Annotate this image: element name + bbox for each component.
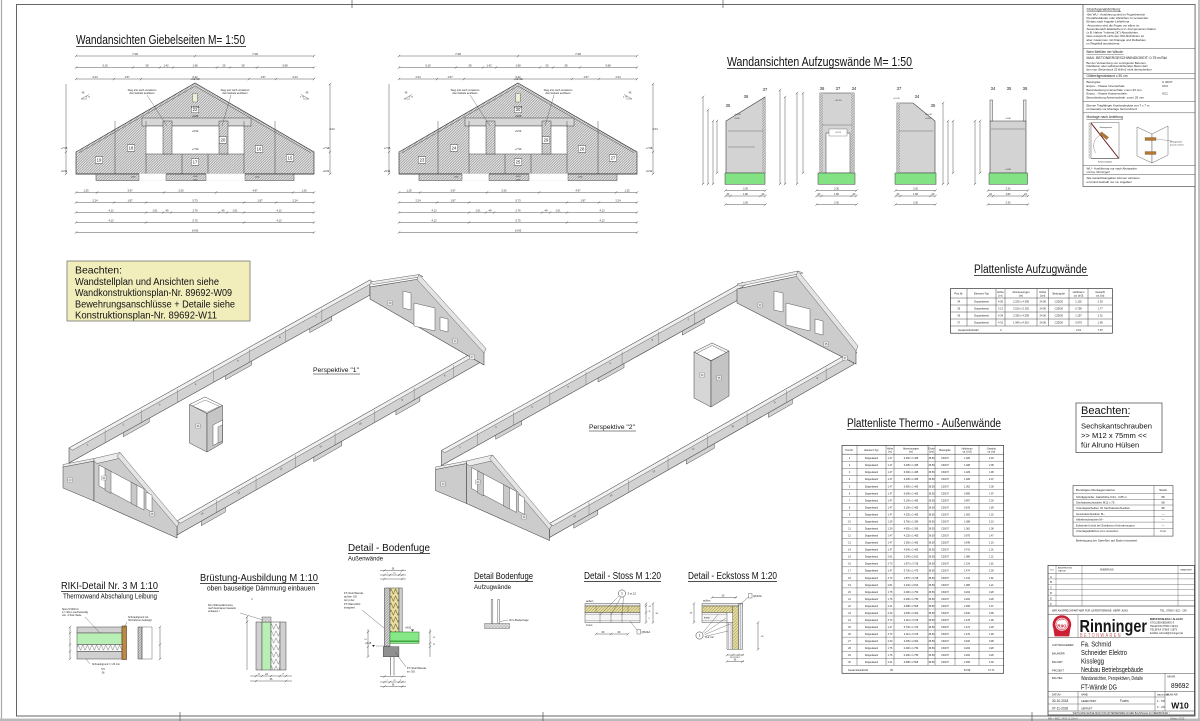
svg-text:+9.52: +9.52 — [515, 129, 522, 133]
svg-text:4.12: 4.12 — [599, 219, 605, 223]
svg-text:Wandstellplan und Ansichten s: Wandstellplan und Ansichten siehe — [75, 277, 219, 288]
svg-text:RIKI-Detail Nr. 3 M 1:10: RIKI-Detail Nr. 3 M 1:10 — [61, 581, 159, 592]
svg-text:33.59: 33.59 — [964, 668, 971, 672]
svg-text:36.50: 36.50 — [929, 577, 936, 580]
svg-text:1.82: 1.82 — [743, 193, 748, 196]
svg-text:1.87: 1.87 — [450, 199, 456, 203]
svg-text:Doppelwand: Doppelwand — [865, 598, 879, 601]
svg-text:+8.86: +8.86 — [1005, 118, 1011, 120]
svg-text:Unterlagsplättchen zum versetz: Unterlagsplättchen zum versetzen — [1076, 529, 1119, 533]
svg-text:C30/37: C30/37 — [941, 535, 949, 538]
svg-text:Doppelwand: Doppelwand — [865, 577, 879, 580]
svg-text:2.30: 2.30 — [743, 202, 748, 205]
svg-text:C30/37: C30/37 — [941, 471, 949, 474]
svg-text:1.314: 1.314 — [964, 563, 971, 566]
svg-text:Doppelwand: Doppelwand — [865, 499, 879, 502]
svg-text:Gitterträgerabstand ≤ 50 cm: Gitterträgerabstand ≤ 50 cm — [1087, 74, 1128, 78]
svg-text:Fundamentplatte: Fundamentplatte — [1098, 161, 1112, 164]
svg-text:1.47: 1.47 — [888, 506, 893, 509]
svg-text:1.75: 1.75 — [888, 647, 893, 650]
svg-text:6.105 x 1.465: 6.105 x 1.465 — [904, 499, 919, 502]
svg-text:AUFTRAGGEBER: AUFTRAGGEBER — [1052, 643, 1074, 647]
svg-text:Doppelwand: Doppelwand — [865, 485, 879, 488]
svg-text:7.00: 7.00 — [455, 52, 461, 56]
svg-text:1.87: 1.87 — [257, 199, 263, 203]
svg-text:3.350 x 1.465: 3.350 x 1.465 — [904, 542, 919, 545]
svg-text:6.32: 6.32 — [515, 75, 521, 79]
svg-text:C30/37: C30/37 — [941, 506, 949, 509]
svg-text:1.479: 1.479 — [964, 633, 971, 636]
svg-text:0.979: 0.979 — [1075, 321, 1082, 325]
svg-text:Doppelwand: Doppelwand — [865, 528, 879, 531]
svg-text:[m]: [m] — [999, 293, 1003, 297]
svg-text:1.47: 1.47 — [888, 478, 893, 481]
svg-text:24.00: 24.00 — [1040, 314, 1047, 318]
svg-text:2.03: 2.03 — [989, 499, 994, 502]
svg-text:1.47: 1.47 — [888, 549, 893, 552]
svg-text:FT-Wände DG: FT-Wände DG — [1081, 683, 1117, 692]
svg-text:C30/37: C30/37 — [941, 626, 949, 629]
svg-text:C30/37: C30/37 — [941, 563, 949, 566]
svg-text:Doppelwand: Doppelwand — [865, 542, 879, 545]
svg-text:HERR JUNG: HERR JUNG — [1113, 609, 1128, 613]
svg-text:Doppelwand: Doppelwand — [865, 612, 879, 615]
svg-text:2.08: 2.08 — [989, 464, 994, 467]
svg-text:2.230 u 4.338: 2.230 u 4.338 — [1013, 300, 1029, 304]
svg-text:+9.89: +9.89 — [192, 114, 199, 118]
svg-text:BETONWAREN: BETONWAREN — [1080, 633, 1122, 639]
svg-text:+8.81: +8.81 — [254, 177, 260, 179]
svg-text:1.47: 1.47 — [888, 513, 893, 516]
svg-text:GEZEICHNET: GEZEICHNET — [1081, 700, 1097, 703]
svg-text:Doppelwand: Doppelwand — [865, 563, 879, 566]
svg-text:des Giebels ausfösen: des Giebels ausfösen — [453, 91, 479, 95]
svg-text:2.265: 2.265 — [964, 661, 971, 664]
svg-text:6.300 x 1.465: 6.300 x 1.465 — [904, 457, 919, 460]
svg-text:Plattenliste Aufzugwände: Plattenliste Aufzugwände — [974, 264, 1087, 276]
svg-text:6.04: 6.04 — [652, 127, 658, 131]
svg-text:1.47: 1.47 — [888, 471, 893, 474]
svg-text:1.99: 1.99 — [989, 619, 994, 622]
svg-text:4.34: 4.34 — [998, 314, 1004, 318]
svg-text:4.5: 4.5 — [649, 606, 652, 608]
svg-text:+7.98: +7.98 — [646, 146, 653, 150]
svg-text:W10: W10 — [1171, 701, 1189, 711]
svg-text:C30/37: C30/37 — [941, 492, 949, 495]
svg-text:2.30: 2.30 — [834, 188, 839, 191]
svg-text:Doppelwand: Doppelwand — [865, 640, 879, 643]
svg-text:1.89: 1.89 — [989, 506, 994, 509]
svg-text:Thermowand Abschalung Leibung: Thermowand Abschalung Leibung — [63, 594, 157, 601]
svg-text:5.75: 5.75 — [192, 219, 198, 223]
svg-text:2.30: 2.30 — [888, 640, 893, 643]
svg-text:D: D — [1050, 591, 1052, 595]
svg-text:C30/37: C30/37 — [941, 619, 949, 622]
svg-text:0.490 x 1.750: 0.490 x 1.750 — [904, 654, 919, 657]
svg-text:37: 37 — [763, 87, 768, 92]
svg-text:innen: innen — [704, 617, 711, 620]
svg-text:17: 17 — [193, 160, 198, 165]
svg-text:4.97: 4.97 — [252, 189, 258, 193]
svg-text:Montagewinkel: Montagewinkel — [1170, 141, 1183, 144]
svg-text:1.47: 1.47 — [888, 485, 893, 488]
svg-text:34: 34 — [852, 86, 857, 91]
svg-text:2.110 x 3.728: 2.110 x 3.728 — [904, 619, 919, 622]
svg-text:STOLZENSEEWEG 9: STOLZENSEEWEG 9 — [1150, 620, 1174, 624]
svg-text:0.490 x 1.750: 0.490 x 1.750 — [904, 591, 919, 594]
svg-text:+6.91: +6.91 — [384, 169, 391, 173]
svg-text:6.300 x 1.465: 6.300 x 1.465 — [904, 471, 919, 474]
svg-text:2.31: 2.31 — [1098, 314, 1104, 318]
svg-text:C30/37: C30/37 — [941, 605, 949, 608]
svg-text:Stück: Stück — [1159, 488, 1167, 492]
svg-text:1.47: 1.47 — [989, 535, 994, 538]
svg-text:36.50: 36.50 — [929, 478, 936, 481]
svg-text:NAME: NAME — [1081, 694, 1088, 697]
svg-text:37: 37 — [897, 86, 902, 91]
svg-text:18: 18 — [129, 146, 134, 151]
svg-text:36.50: 36.50 — [929, 633, 936, 636]
svg-text:B: B — [1050, 580, 1052, 584]
svg-text:Perspektive "2": Perspektive "2" — [589, 425, 635, 431]
svg-text:Eckwinkel (nicht bei Sichtbeto: Eckwinkel (nicht bei Sichtbeton Anforder… — [1076, 523, 1135, 527]
svg-text:DATUM: DATUM — [1052, 694, 1060, 697]
svg-text:C30/37: C30/37 — [941, 654, 949, 657]
svg-text:6.088 x 2.505: 6.088 x 2.505 — [904, 605, 919, 608]
svg-text:4.97: 4.97 — [575, 189, 581, 193]
svg-text:1.98: 1.98 — [989, 471, 994, 474]
svg-text:1.42: 1.42 — [163, 64, 169, 68]
svg-text:1.062: 1.062 — [964, 485, 971, 488]
svg-text:Gewindeschrauben M--: Gewindeschrauben M-- — [1076, 512, 1105, 516]
svg-text:4 ø 12: 4 ø 12 — [705, 635, 714, 639]
svg-text:36.50: 36.50 — [929, 457, 936, 460]
svg-text:2.37: 2.37 — [989, 605, 994, 608]
svg-text:7.00: 7.00 — [132, 52, 138, 56]
svg-text:+11.20: +11.20 — [835, 100, 842, 102]
svg-text:Betongüte: Betongüte — [939, 449, 951, 452]
svg-text:24.00: 24.00 — [1040, 307, 1047, 311]
svg-text:Perspektive "1": Perspektive "1" — [313, 368, 359, 374]
svg-text:+6.91: +6.91 — [646, 169, 653, 173]
svg-text:36.50: 36.50 — [929, 647, 936, 650]
svg-text:4.30: 4.30 — [998, 300, 1004, 304]
svg-text:1.87: 1.87 — [580, 199, 586, 203]
svg-text:Montagestütze: Montagestütze — [1100, 126, 1112, 129]
svg-text:Plattenliste Thermo - Außenw: Plattenliste Thermo - Außenwände — [847, 418, 1001, 430]
svg-text:integriert: integriert — [344, 605, 355, 609]
svg-text:GEPRÜFT: GEPRÜFT — [1081, 708, 1093, 711]
svg-text:+8.81: +8.81 — [515, 179, 521, 181]
svg-text:Doppelwand: Doppelwand — [865, 457, 879, 460]
svg-text:35: 35 — [726, 103, 731, 108]
svg-text:Brüstung-Ausbildung M 1:10: Brüstung-Ausbildung M 1:10 — [200, 573, 319, 584]
svg-text:1.029: 1.029 — [964, 471, 971, 474]
svg-text:BAUORT: BAUORT — [1052, 660, 1063, 664]
svg-text:5.19: 5.19 — [425, 64, 431, 68]
svg-text:1.39: 1.39 — [888, 520, 893, 523]
svg-text:Beim Befüllen der Wände:: Beim Befüllen der Wände: — [1087, 50, 1124, 54]
svg-text:2.21: 2.21 — [888, 661, 893, 664]
svg-text:2.07: 2.07 — [989, 478, 994, 481]
svg-text:RIKI: RIKI — [1057, 623, 1067, 629]
svg-text:1.47: 1.47 — [888, 492, 893, 495]
svg-text:Konstruktionsplan-Nr. 89692-W1: Konstruktionsplan-Nr. 89692-W11 — [75, 311, 217, 322]
svg-text:1.081: 1.081 — [964, 528, 971, 531]
svg-text:68: 68 — [1161, 495, 1165, 499]
svg-text:C30/37: C30/37 — [941, 591, 949, 594]
svg-text:1.940 u 4.310: 1.940 u 4.310 — [1013, 321, 1029, 325]
svg-text:24.00: 24.00 — [1040, 321, 1047, 325]
svg-text:Doppelwand: Doppelwand — [865, 570, 879, 573]
svg-text:C30/37: C30/37 — [941, 570, 949, 573]
svg-text:1.875 x 3.728: 1.875 x 3.728 — [904, 563, 919, 566]
svg-text:Unterlagsscheiben für Sechskan: Unterlagsscheiben für Sechskantschrauben — [1076, 506, 1131, 510]
svg-text:2.30: 2.30 — [888, 612, 893, 615]
svg-text:1: 1 — [699, 634, 701, 638]
svg-text:36.50: 36.50 — [929, 584, 936, 587]
svg-text:24.00: 24.00 — [1040, 300, 1047, 304]
svg-text:36.50: 36.50 — [929, 612, 936, 615]
svg-text:Detail Bodenfuge: Detail Bodenfuge — [474, 571, 533, 582]
svg-text:Betondeckung Aussenschale:: Betondeckung Aussenschale: cnom 25 mm — [1087, 95, 1145, 99]
svg-text:0.548: 0.548 — [964, 542, 971, 545]
svg-text:+7.98: +7.98 — [323, 146, 330, 150]
svg-text:0.910: 0.910 — [964, 612, 971, 615]
svg-text:1.01: 1.01 — [152, 209, 158, 213]
svg-text:+8.81: +8.81 — [192, 179, 198, 181]
svg-text:4.01: 4.01 — [1076, 328, 1082, 332]
svg-text:C25/30: C25/30 — [1055, 307, 1064, 311]
svg-text:4.31: 4.31 — [998, 321, 1004, 325]
svg-text:36.50: 36.50 — [929, 499, 936, 502]
svg-text:24: 24 — [452, 146, 457, 151]
svg-text:89692: 89692 — [1171, 683, 1189, 690]
svg-text:7.97: 7.97 — [1098, 328, 1104, 332]
svg-text:Betongüte: Betongüte — [1053, 292, 1066, 296]
svg-text:9: 9 — [649, 618, 650, 620]
svg-text:für Alruno Hülsen: für Alruno Hülsen — [1081, 441, 1139, 450]
svg-text:ÄNDERUNGS: ÄNDERUNGS — [1058, 567, 1073, 570]
svg-text:+9.89: +9.89 — [515, 114, 522, 118]
svg-text:C30/37: C30/37 — [941, 584, 949, 587]
svg-text:0.98: 0.98 — [989, 612, 994, 615]
svg-text:1.75: 1.75 — [888, 598, 893, 601]
svg-text:Holzrahmen befestigt: Holzrahmen befestigt — [128, 619, 152, 622]
svg-text:A: A — [1050, 575, 1052, 579]
svg-text:2.08: 2.08 — [989, 485, 994, 488]
svg-text:des Giebels ausfösen: des Giebels ausfösen — [130, 91, 156, 95]
svg-text:0.202: 0.202 — [964, 598, 971, 601]
svg-text:TELEFAX 07563 / 1873: TELEFAX 07563 / 1873 — [1150, 628, 1177, 632]
svg-text:6.32: 6.32 — [192, 75, 198, 79]
svg-text:36.50: 36.50 — [929, 542, 936, 545]
svg-text:Wandansichten, Perspektiven, D: Wandansichten, Perspektiven, Detaile — [1081, 676, 1143, 682]
svg-text:2.30: 2.30 — [743, 188, 748, 191]
svg-text:1.47: 1.47 — [888, 542, 893, 545]
svg-text:+8.84: +8.84 — [515, 176, 521, 178]
svg-text:3.73: 3.73 — [888, 563, 893, 566]
svg-text:Montage nach Anleitung: Montage nach Anleitung — [1087, 115, 1123, 119]
svg-text:1.086: 1.086 — [964, 584, 971, 587]
svg-text:4.12: 4.12 — [108, 219, 114, 223]
svg-text:1.81: 1.81 — [989, 577, 994, 580]
svg-text:2.510 u 3.130: 2.510 u 3.130 — [1013, 307, 1029, 311]
svg-text:1.01: 1.01 — [989, 549, 994, 552]
svg-text:C30/37: C30/37 — [941, 464, 949, 467]
svg-text:C30/37: C30/37 — [941, 556, 949, 559]
svg-text:2.50: 2.50 — [501, 189, 507, 193]
svg-text:Doppelwand: Doppelwand — [865, 513, 879, 516]
svg-text:Bewehrungsanschlüsse + Detaile: Bewehrungsanschlüsse + Detaile siehe — [75, 299, 235, 310]
svg-text:1.57: 1.57 — [260, 75, 266, 79]
svg-text:Doppelwand: Doppelwand — [974, 300, 989, 304]
svg-text:---: --- — [1162, 523, 1165, 527]
svg-text:5.75: 5.75 — [515, 219, 521, 223]
svg-text:2.21: 2.21 — [888, 605, 893, 608]
svg-text:1.21: 1.21 — [989, 556, 994, 559]
svg-text:+6.86: +6.86 — [1005, 169, 1011, 171]
svg-text:2.81: 2.81 — [888, 584, 893, 587]
svg-text:36.50: 36.50 — [929, 520, 936, 523]
svg-text:Doppelwand: Doppelwand — [865, 647, 879, 650]
svg-text:07-11-2018: 07-11-2018 — [1052, 707, 1068, 711]
svg-text:+7.98: +7.98 — [384, 146, 391, 150]
svg-text:6.760 x 1.390: 6.760 x 1.390 — [904, 520, 919, 523]
svg-text:Doppelwand: Doppelwand — [865, 520, 879, 523]
svg-text:Außenwände: Außenwände — [348, 556, 383, 563]
svg-text:2.265: 2.265 — [964, 605, 971, 608]
svg-text:Doppelwand: Doppelwand — [865, 584, 879, 587]
svg-text:2.50: 2.50 — [178, 189, 184, 193]
svg-text:36.50: 36.50 — [929, 528, 936, 531]
svg-text:36.50: 36.50 — [929, 471, 936, 474]
svg-text:4.225 x 1.465: 4.225 x 1.465 — [904, 513, 919, 516]
svg-text:1.479: 1.479 — [964, 619, 971, 622]
svg-text:0.28: 0.28 — [989, 591, 994, 594]
svg-text:4.12: 4.12 — [276, 209, 282, 213]
svg-text:Abhebeschrauben M--: Abhebeschrauben M-- — [1076, 518, 1104, 522]
svg-text:0.28: 0.28 — [989, 654, 994, 657]
svg-text:Pos: Pos — [1050, 570, 1053, 572]
svg-text:ca. [to]: ca. [to] — [988, 451, 996, 454]
svg-text:2.24: 2.24 — [415, 75, 421, 79]
svg-text:2.30: 2.30 — [913, 188, 918, 191]
svg-text:2.30: 2.30 — [1006, 188, 1011, 191]
svg-text:7.00: 7.00 — [252, 52, 258, 56]
svg-text:36.50: 36.50 — [929, 549, 936, 552]
svg-text:2.24: 2.24 — [292, 75, 298, 79]
svg-text:Detail - Stoss M 1:20: Detail - Stoss M 1:20 — [584, 571, 661, 582]
svg-text:4.12: 4.12 — [108, 209, 114, 213]
svg-text:6.088 x 2.505: 6.088 x 2.505 — [904, 661, 919, 664]
svg-text:36.50: 36.50 — [929, 626, 936, 629]
svg-text:Beachten:: Beachten: — [1081, 405, 1131, 417]
svg-text:>> M12 x 75mm <<: >> M12 x 75mm << — [1081, 431, 1147, 440]
svg-text:0.202: 0.202 — [964, 591, 971, 594]
svg-text:XC1: XC1 — [1162, 92, 1168, 96]
svg-text:1.01: 1.01 — [232, 209, 238, 213]
svg-text:2.18: 2.18 — [989, 457, 994, 460]
svg-text:35: 35 — [931, 103, 936, 108]
svg-text:C30/37: C30/37 — [941, 478, 949, 481]
svg-text:ca. [to]: ca. [to] — [1096, 293, 1104, 297]
svg-text:+8.81: +8.81 — [130, 177, 136, 179]
svg-text:Doppelwand: Doppelwand — [974, 321, 989, 325]
svg-text:Doppelwand: Doppelwand — [865, 619, 879, 622]
svg-text:TEL. 07563 / 922 - 139: TEL. 07563 / 922 - 139 — [1160, 609, 1187, 613]
svg-text:Wandansichten Aufzugswände: Wandansichten Aufzugswände M= 1:50 — [727, 55, 912, 69]
svg-text:36.50: 36.50 — [929, 506, 936, 509]
svg-text:2.39: 2.39 — [989, 661, 994, 664]
svg-text:36.50: 36.50 — [929, 654, 936, 657]
svg-text:Sechskantschrauben M12 x: Sechskantschrauben M12 x 75 — [1076, 501, 1115, 505]
svg-text:1.87: 1.87 — [127, 199, 133, 203]
svg-text:+10.52: +10.52 — [514, 105, 523, 109]
svg-text:0.741: 0.741 — [964, 549, 971, 552]
svg-text:1.42: 1.42 — [486, 64, 492, 68]
svg-text:4.12: 4.12 — [431, 209, 437, 213]
svg-text:Benötigtes Montagematerial: Benötigtes Montagematerial — [1076, 488, 1115, 492]
svg-text:Element-Typ: Element-Typ — [864, 449, 879, 452]
svg-text:36.50: 36.50 — [929, 513, 936, 516]
svg-text:1.474: 1.474 — [964, 626, 971, 629]
svg-text:1.003: 1.003 — [964, 513, 971, 516]
svg-text:5.19: 5.19 — [102, 64, 108, 68]
svg-text:36.50: 36.50 — [929, 556, 936, 559]
svg-text:2.76: 2.76 — [515, 209, 521, 213]
svg-text:2.24: 2.24 — [92, 75, 98, 79]
svg-text:Wandansichten Giebelseiten: Wandansichten Giebelseiten M= 1:50 — [76, 33, 245, 47]
svg-text:1.01: 1.01 — [475, 209, 481, 213]
svg-text:1.388: 1.388 — [964, 520, 971, 523]
svg-text:1.75: 1.75 — [888, 591, 893, 594]
svg-text:4.540 x 1.465: 4.540 x 1.465 — [904, 549, 919, 552]
svg-text:6.905 x 1.465: 6.905 x 1.465 — [904, 485, 919, 488]
svg-text:5.98: 5.98 — [605, 64, 611, 68]
svg-text:1.875 x 3.728: 1.875 x 3.728 — [904, 577, 919, 580]
svg-text:3cm Bodenfuge: 3cm Bodenfuge — [509, 618, 529, 622]
svg-text:2.30: 2.30 — [913, 202, 918, 205]
svg-text:Fuchs: Fuchs — [1120, 699, 1129, 703]
svg-text:35: 35 — [1007, 86, 1012, 91]
svg-text:Doppelwand: Doppelwand — [865, 535, 879, 538]
svg-text:1.25: 1.25 — [406, 189, 412, 193]
svg-text:C30/37: C30/37 — [941, 542, 949, 545]
svg-text:0.758: 0.758 — [1075, 307, 1082, 311]
svg-text:und sind deshalb nur ca. Angab: und sind deshalb nur ca. Angaben — [1087, 180, 1133, 184]
svg-text:0.997: 0.997 — [964, 499, 971, 502]
svg-text:1.47: 1.47 — [888, 464, 893, 467]
svg-text:14.00: 14.00 — [192, 229, 199, 233]
svg-text:1.82: 1.82 — [1006, 193, 1011, 196]
svg-text:15: 15 — [288, 156, 293, 161]
svg-text:[m]: [m] — [909, 451, 913, 454]
svg-text:2.24: 2.24 — [615, 199, 621, 203]
svg-text:2.240 x 2.813: 2.240 x 2.813 — [904, 556, 919, 559]
svg-text:1.157: 1.157 — [1075, 314, 1082, 318]
svg-text:0.28: 0.28 — [989, 598, 994, 601]
svg-text:5.98: 5.98 — [282, 64, 288, 68]
svg-text:1 : 20: 1 : 20 — [1157, 705, 1165, 709]
svg-text:2.24: 2.24 — [615, 75, 621, 79]
svg-text:1.21: 1.21 — [989, 584, 994, 587]
svg-text:+10.26: +10.26 — [734, 114, 742, 116]
svg-text:36.50: 36.50 — [929, 661, 936, 664]
svg-text:Doppelwand: Doppelwand — [865, 626, 879, 629]
svg-text:C30/37: C30/37 — [941, 528, 949, 531]
svg-text:Gesamtstückzahl: Gesamtstückzahl — [958, 328, 979, 332]
